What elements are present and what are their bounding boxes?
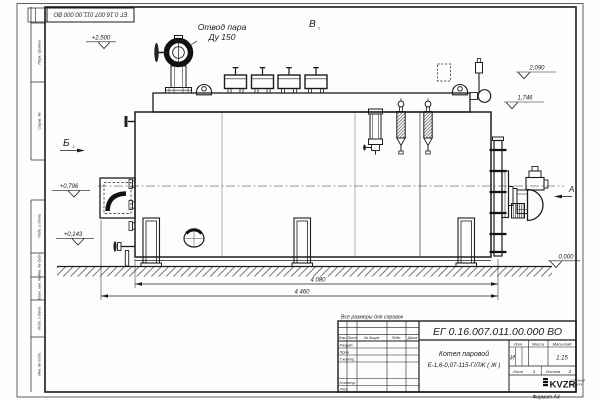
boiler-drawing-svg: Перв. примен. Справ. № Подп. и дата Инв.…	[0, 0, 600, 400]
water-column	[363, 109, 382, 155]
nozzle-flange	[129, 222, 135, 231]
product-name: Котел паровой	[439, 350, 489, 358]
ground-line	[57, 267, 552, 277]
smoke-box	[100, 178, 135, 218]
steam-outlet-callout: Отвод пара Ду 150	[186, 22, 247, 48]
svg-text:2: 2	[568, 369, 572, 374]
elevation-mark: 1,746	[504, 96, 544, 109]
margin-label: Справ. №	[38, 112, 42, 129]
company-logo: KVZR КОТЕЛЬНЫЙ ЗАВОД РФ	[543, 378, 585, 391]
support-legs	[141, 218, 477, 267]
margin-label: Взам. инв. №	[38, 277, 42, 300]
boiler-shell	[135, 112, 491, 257]
svg-text:1: 1	[533, 369, 536, 374]
svg-text:Ду 150: Ду 150	[208, 32, 236, 42]
svg-text:КОТЕЛЬНЫЙ: КОТЕЛЬНЫЙ	[571, 380, 586, 383]
scale-value: 1:15	[556, 356, 568, 362]
rear-wall-fittings	[113, 116, 135, 266]
svg-text:ЗАВОД РФ: ЗАВОД РФ	[571, 384, 583, 387]
plate-right-fittings	[438, 59, 491, 103]
drawing-sheet: Перв. примен. Справ. № Подп. и дата Инв.…	[0, 0, 600, 400]
svg-text:Листов: Листов	[545, 369, 561, 374]
litera-value: И	[510, 355, 515, 362]
margin-label: Инв. № дубл.	[38, 253, 42, 276]
svg-text:2,090: 2,090	[528, 66, 545, 72]
product-designation: Е-1,6-0,07-115-Г/ЛЖ ( Ж )	[428, 362, 501, 369]
lifting-ring	[478, 90, 491, 103]
doc-number-rotated: ЕГ 0.16.007.011.00.000 ВО	[53, 11, 127, 17]
svg-text:В: В	[309, 19, 316, 30]
svg-text:Масса: Масса	[532, 341, 545, 346]
svg-text:1,746: 1,746	[517, 96, 533, 102]
reference-note: Все размеры для справок	[341, 315, 404, 321]
burner-assembly	[502, 167, 548, 221]
ground-hatching	[57, 267, 552, 277]
svg-text:+0,796: +0,796	[60, 184, 79, 190]
rotated-doc-number-stamp: ЕГ 0.16.007.011.00.000 ВО	[28, 8, 134, 22]
support-leg	[141, 218, 162, 267]
safety-valve-box	[252, 67, 274, 93]
water-level-gauges	[363, 99, 432, 155]
svg-text:Разраб.: Разраб.	[340, 343, 354, 348]
gauge-glass	[397, 99, 405, 155]
valve-handwheel	[154, 43, 158, 62]
safety-valve-box	[225, 67, 247, 93]
margin-column-labels: Перв. примен. Справ. № Подп. и дата Инв.…	[38, 39, 42, 375]
view-marker-b: Б 2	[60, 138, 85, 152]
svg-text:Пров.: Пров.	[340, 350, 350, 355]
svg-text:Лист: Лист	[512, 369, 524, 374]
top-plate	[153, 93, 470, 112]
svg-text:Н.контр.: Н.контр.	[340, 380, 356, 385]
svg-text:Отвод пара: Отвод пара	[198, 22, 247, 32]
margin-label: Перв. примен.	[38, 39, 42, 64]
svg-text:Т.контр.: Т.контр.	[340, 357, 356, 362]
burner-fins	[512, 204, 525, 219]
svg-text:Изм.: Изм.	[339, 336, 347, 340]
dimensions: 4 080 4 460	[101, 220, 498, 300]
svg-text:0,000: 0,000	[558, 255, 574, 261]
nameplate-dashed	[438, 64, 451, 81]
safety-valve-box	[278, 67, 300, 93]
elevation-mark: 2,090	[516, 66, 556, 79]
elevation-mark: +2,500	[86, 36, 116, 49]
steam-outlet-valve	[154, 36, 191, 94]
svg-text:№ докум.: № докум.	[364, 336, 380, 340]
margin-label: Подп. и дата	[38, 214, 42, 238]
nozzle-flange	[129, 201, 135, 210]
support-leg	[292, 218, 313, 267]
svg-text:Масштаб: Масштаб	[553, 341, 572, 346]
svg-text:2: 2	[72, 145, 75, 149]
svg-text:Лист: Лист	[346, 336, 356, 340]
svg-text:+0,143: +0,143	[64, 232, 83, 238]
drain-valve	[113, 241, 135, 266]
support-leg	[456, 218, 477, 267]
svg-text:Подп.: Подп.	[392, 336, 402, 340]
elevation-mark: +0,796	[52, 184, 90, 197]
svg-text:А: А	[568, 185, 574, 194]
safety-valve-box	[305, 67, 327, 93]
boiler-side-view	[57, 36, 564, 277]
svg-text:Дата: Дата	[407, 336, 417, 340]
dimension-label: 4 080	[310, 278, 326, 284]
safety-valve-boxes	[225, 67, 328, 93]
gauge-glass	[424, 99, 432, 155]
svg-text:Б: Б	[63, 138, 70, 149]
view-marker-a: А 2	[554, 185, 577, 198]
margin-label: Инв. № подл.	[38, 352, 42, 376]
dimension-label: 4 460	[294, 290, 310, 296]
format-note: Формат А3	[532, 394, 560, 400]
view-marker-v: В 2	[309, 19, 320, 31]
svg-text:Лит.: Лит.	[513, 341, 523, 346]
svg-text:2: 2	[574, 192, 577, 196]
svg-text:+2,500: +2,500	[92, 36, 111, 42]
svg-text:Утв.: Утв.	[340, 387, 349, 392]
nozzle-flange	[129, 180, 135, 189]
title-doc-number: ЕГ 0.16.007.011.00.000 ВО	[433, 326, 562, 338]
burner-motor	[526, 178, 544, 191]
manhole	[184, 230, 204, 247]
door-flange-bar	[490, 137, 507, 256]
elevation-mark: +0,143	[56, 232, 94, 245]
svg-text:2: 2	[317, 27, 320, 31]
fan-volute	[528, 190, 544, 221]
duct-bend	[108, 194, 127, 212]
margin-label: Подп. и дата	[38, 307, 42, 331]
